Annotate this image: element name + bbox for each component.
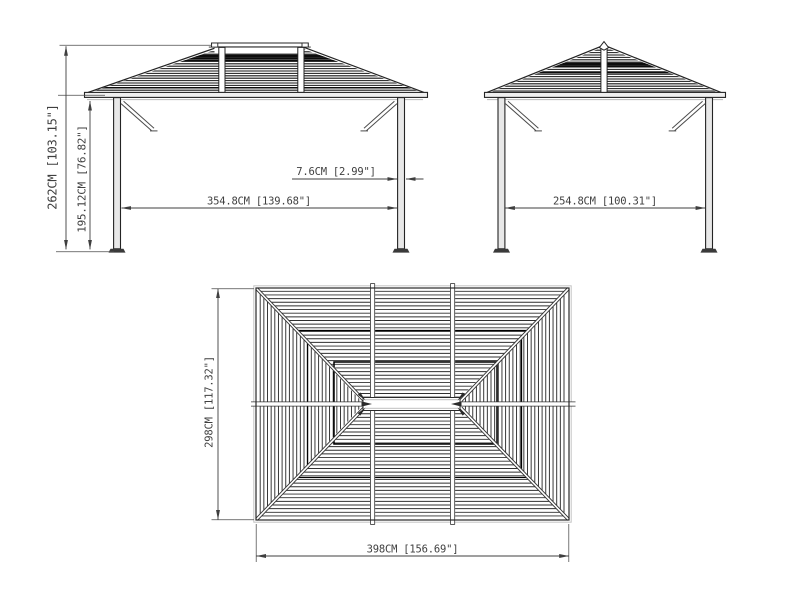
front-eave-band — [85, 92, 428, 97]
side-brace-right — [669, 101, 706, 131]
label-front-overall-height: 262CM [103.15"] — [46, 104, 60, 209]
front-ridge-cap — [212, 43, 309, 47]
side-center-pole — [601, 48, 607, 93]
label-plan-width: 398CM [156.69"] — [367, 544, 459, 556]
front-vent-post-right — [298, 47, 304, 95]
front-ridge-cap-end-left — [212, 43, 218, 47]
front-roof-white-band — [215, 48, 305, 53]
front-elevation-view — [80, 43, 428, 253]
side-post-left — [498, 98, 505, 249]
side-eave-band — [485, 92, 726, 97]
front-post-left — [114, 98, 121, 249]
front-brace-right — [361, 101, 398, 131]
front-brace-left — [121, 101, 158, 131]
side-post-right — [706, 98, 713, 249]
label-front-span: 354.8CM [139.68"] — [207, 196, 311, 208]
gazebo-dimension-drawing: 262CM [103.15"] 195.12CM [76.82"] 354.8C… — [0, 0, 800, 600]
label-side-span: 254.8CM [100.31"] — [553, 196, 657, 208]
drawing-canvas: 262CM [103.15"] 195.12CM [76.82"] 354.8C… — [0, 0, 800, 600]
front-base-plate-right — [393, 249, 410, 253]
label-front-post-height: 195.12CM [76.82"] — [76, 125, 89, 232]
roof-plan-view — [251, 284, 576, 525]
side-elevation-view — [480, 42, 728, 253]
front-post-right — [398, 98, 405, 249]
front-ridge-cap-end-right — [302, 43, 308, 47]
side-base-plate-left — [493, 249, 510, 253]
label-plan-depth: 298CM [117.32"] — [204, 356, 216, 448]
side-finial — [599, 42, 608, 51]
side-base-plate-right — [701, 249, 718, 253]
front-vent-post-left — [219, 47, 225, 95]
label-front-post-width: 7.6CM [2.99"] — [296, 166, 376, 178]
side-brace-left — [505, 101, 542, 131]
